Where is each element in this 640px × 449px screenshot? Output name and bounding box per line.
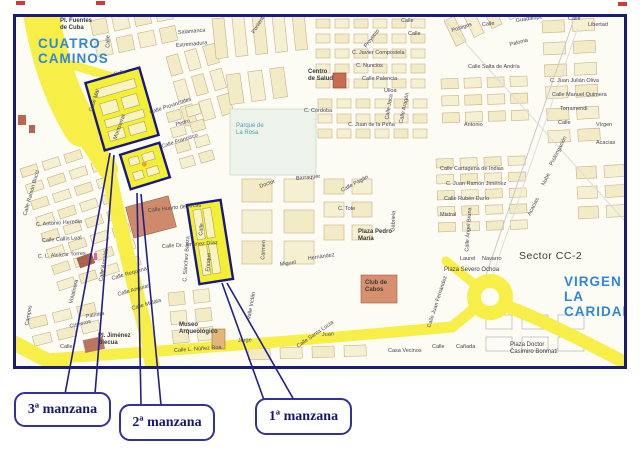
district-cuatro-caminos-label: CUATRO CAMINOS [38,37,109,67]
centro-de-salud-label: Centro de Salud [308,69,333,83]
street-label: Calle Huerto de Arcas [148,203,202,214]
street-label: Calle Requena [111,267,147,282]
street-label: Calle [408,32,421,38]
street-label: Calle Ángel Bruna [465,207,474,252]
city-map-figure: CalleSalamancaExtremaduraPonienteCalleCa… [13,14,627,369]
street-label: Doctor [259,180,276,191]
street-label: Montserrat [113,114,127,141]
callout-manzana-2: 2ª manzana [119,404,215,441]
callout-manzana-3: 3ª manzana [14,392,111,427]
street-label: Calle [113,70,127,78]
street-label: Calle [568,17,581,23]
street-label: C. Javier Compostela [352,51,405,57]
street-label: Enrique [206,253,213,272]
street-label: C. Nuncios [356,64,383,70]
street-label: Calle [60,345,73,351]
plaza-doctor-casimiro-bonmati-label: Plaza Doctor Casimiro Bonmatí [510,342,558,356]
parque-de-la-rosa-label: Parque de La Rosa [236,123,264,137]
street-label: Guadalupe [516,15,543,24]
street-label: Calle Ramón Bucci [23,170,41,216]
scanned-map-page: CalleSalamancaExtremaduraPonienteCalleCa… [0,0,640,449]
street-label: Juan [322,332,334,338]
street-label: C. Tote [338,207,355,213]
street-label: Calle [558,121,571,127]
street-label: C. Juan de la Peña [348,123,395,129]
street-label: Libertad [588,23,608,29]
street-label: Calle Provinciales [149,98,192,117]
street-label: Proyecto [364,29,382,50]
street-label: Calle Aragón [399,92,411,124]
street-label: Calle Palencia [362,77,397,83]
street-label: Calle Ansaldo [99,248,110,282]
street-label: Calle L. Núñez Roa [174,346,222,355]
callout-manzana-1-label: 1ª manzana [269,409,338,425]
callout-manzana-2-label: 2ª manzana [132,415,201,431]
street-label: Calle Francisco [161,133,199,150]
street-label: Salamanca [178,29,206,37]
district-virgen-la-caridad-label: VIRGEN LA CARIDAD [564,275,627,320]
street-label: Acacias [596,141,615,147]
street-label: Volatinera [69,279,80,304]
street-label: Calle Rubén Darío [444,197,489,203]
club-de-cabos-label: Club de Cabos [365,280,387,294]
street-label: Vírgen [596,123,612,129]
street-label: Calle Mar [89,89,102,113]
street-label: Calle [482,22,495,29]
street-label: Cañada [456,345,475,351]
scan-mark [16,1,25,5]
street-label: Campos [25,305,34,326]
street-label: Barraquer [296,175,321,183]
street-label: C. Córdoba [304,109,332,115]
callout-manzana-1: 1ª manzana [255,398,352,435]
map-labels-layer: CalleSalamancaExtremaduraPonienteCalleCa… [16,17,624,366]
street-label: Acacias [528,197,542,217]
street-label: Calle [432,345,445,351]
street-label: Valle Inclán [247,292,257,321]
street-label: C. Juan Julián Oliva [550,79,599,85]
street-label: Calle Callís Leal [42,236,82,244]
callout-manzana-3-label: 3ª manzana [28,402,97,418]
street-label: Nube [542,173,553,187]
street-label: Prolongación [550,136,569,167]
street-label: C. L. Alcázar Torres [38,252,86,261]
scan-mark [96,1,105,5]
plaza-severo-ochoa-label: Plaza Severo Ochoa [444,267,499,274]
street-label: Pedro [175,119,191,128]
street-label: Laurel [460,257,475,263]
street-label: Paloma [509,39,528,49]
pl-jimenez-blecua-label: Pl. Jiménez Blecua [98,333,131,347]
street-label: Calle Pagán [341,175,370,194]
pl-fuentes-de-cuba-label: Pl. Fuentes de Cuba [60,18,92,32]
street-label: Hernández [308,253,335,262]
street-label: Calle Cartagena de Indias [440,167,504,173]
map-drawing: CalleSalamancaExtremaduraPonienteCalleCa… [16,17,624,366]
street-label: Postigos [451,23,473,35]
street-label: Calle [401,19,414,25]
sector-cc-2-label: Sector CC-2 [519,250,582,262]
street-label: Gabriela [391,211,398,232]
street-label: Antonio [464,123,483,129]
street-label: Calle [199,223,205,236]
street-label: Calle Jaca [385,94,395,120]
street-label: Cisneros [69,320,91,331]
street-label: Poniente [252,14,268,35]
street-label: Mistral [440,213,456,219]
street-label: Miguel [280,261,297,269]
street-label: C. Sánchez Baeza [183,236,192,282]
street-label: Extremadura [176,41,208,49]
street-label: C. Antonio Heredia [36,220,82,229]
street-label: Calle Salta de Andría [468,65,520,71]
street-label: C. Juan Ramón Jiménez [446,182,506,188]
museo-arqueologico-label: Museo Arqueológico [179,322,218,336]
street-label: Navarro [482,257,502,263]
street-label: Torramendi [560,107,588,113]
scan-mark [618,2,627,6]
street-label: Calle Mulata [131,299,162,313]
street-label: Carmen [261,240,268,260]
street-label: Jorge [238,338,252,344]
street-label: Calle Juan Fernández [427,276,449,329]
street-label: Calle Manuel Quimera [552,93,607,99]
street-label: Calle Anguiar [117,284,150,298]
street-label: Casa Vecinos [388,349,422,355]
plaza-pedro-maria-label: Plaza Pedro María [358,229,392,243]
